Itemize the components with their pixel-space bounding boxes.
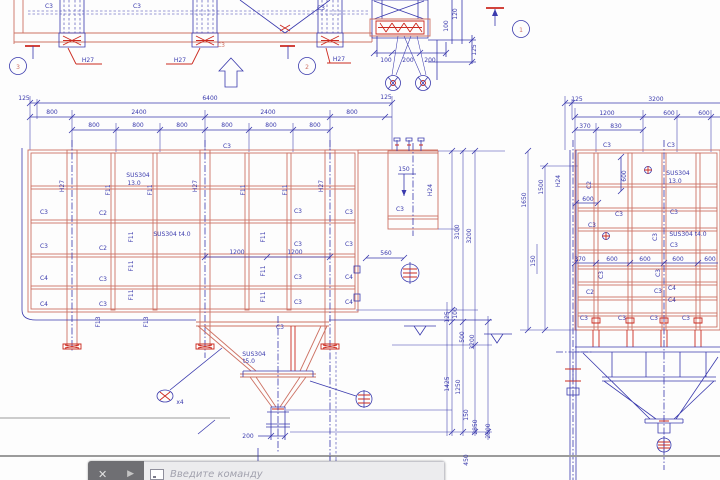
- drawing-label: 150: [463, 409, 470, 421]
- drawing-label: F11: [260, 291, 267, 302]
- drawing-label: 370: [574, 256, 586, 263]
- drawing-label: C3: [670, 242, 678, 249]
- drawing-label: 1200: [229, 249, 244, 256]
- drawing-label: C3: [294, 274, 302, 281]
- close-icon[interactable]: ✕: [98, 469, 107, 480]
- drawing-label: 100: [452, 307, 459, 319]
- drawing-label: C2: [586, 289, 594, 296]
- drawing-label: 500: [459, 331, 466, 343]
- drawing-label: SUS304 t4.0: [153, 231, 190, 238]
- drawing-label: t5.0: [243, 358, 255, 365]
- drawing-label: H24: [555, 175, 562, 187]
- drawing-label: 125: [571, 96, 583, 103]
- drawing-label: C3: [682, 315, 690, 322]
- drawing-label: x4: [176, 399, 184, 406]
- drawing-label: 200: [424, 57, 436, 64]
- drawing-label: 600: [698, 110, 710, 117]
- drawing-label: C3: [45, 3, 53, 10]
- drawing-label: C4: [668, 285, 676, 292]
- drawing-label: SUS304: [126, 172, 150, 179]
- drawing-label: 800: [221, 122, 233, 129]
- drawing-label: C3: [217, 42, 225, 49]
- drawing-label: 800: [46, 109, 58, 116]
- drawing-label: C3: [223, 143, 231, 150]
- drawing-label: 13.0: [127, 180, 141, 187]
- drawing-label: 3200: [466, 228, 473, 243]
- drawing-label: C3: [294, 241, 302, 248]
- cad-app-window: C3C3C3C3H27H27H2732110020020012010012512…: [0, 0, 720, 480]
- drawing-label: C4: [40, 275, 48, 282]
- drawing-label: 3200: [648, 96, 663, 103]
- drawing-label: 200: [402, 57, 414, 64]
- command-prompt-icon: [150, 469, 164, 480]
- drawing-label: C3: [650, 315, 658, 322]
- drawing-label: C4: [40, 301, 48, 308]
- drawing-label: C3: [396, 206, 404, 213]
- drawing-label: C3: [99, 276, 107, 283]
- drawing-label: 1425: [444, 376, 451, 391]
- drawing-label: C3: [99, 301, 107, 308]
- drawing-label: 200: [242, 433, 254, 440]
- drawing-label: 800: [88, 122, 100, 129]
- drawing-label: C2: [99, 210, 107, 217]
- drawing-label: C4: [668, 297, 676, 304]
- drawing-label: 800: [346, 109, 358, 116]
- drawing-label: 120: [452, 8, 459, 20]
- drawing-label: 600: [672, 256, 684, 263]
- drawing-label: 125: [18, 95, 30, 102]
- drawing-label: C3: [294, 299, 302, 306]
- drawing-label: 560: [380, 250, 392, 257]
- drawing-label: 3100: [454, 224, 461, 239]
- drawing-label: 150: [398, 166, 410, 173]
- drawing-label: 1500: [538, 179, 545, 194]
- drawing-label: C3: [615, 211, 623, 218]
- drawing-labels: C3C3C3C3H27H27H2732110020020012010012512…: [16, 3, 716, 466]
- drawing-label: C3: [667, 142, 675, 149]
- run-arrow-icon[interactable]: ▶: [127, 470, 134, 479]
- drawing-label: 830: [610, 123, 622, 130]
- drawing-label: 370: [579, 123, 591, 130]
- drawing-label: F11: [240, 184, 247, 195]
- drawing-label: 100: [443, 20, 450, 32]
- drawing-label: C3: [618, 315, 626, 322]
- drawing-label: H27: [318, 180, 325, 192]
- drawing-label: H27: [333, 56, 345, 63]
- drawing-label: 2400: [131, 109, 146, 116]
- drawing-label: C4: [345, 274, 353, 281]
- drawing-label: 2850: [472, 419, 479, 434]
- drawing-label: C3: [317, 5, 325, 12]
- drawing-label: F11: [282, 184, 289, 195]
- command-bar: ✕ ▶ Введите команду: [88, 461, 445, 480]
- drawing-label: 125: [444, 311, 451, 323]
- drawing-label: 2: [305, 64, 309, 71]
- support-structure: [565, 347, 720, 453]
- drawing-label: C3: [40, 209, 48, 216]
- drawing-label: C2: [99, 245, 107, 252]
- drawing-label: 1200: [599, 110, 614, 117]
- drawing-label: 600: [704, 256, 716, 263]
- drawing-label: 600: [621, 170, 628, 182]
- drawing-label: C3: [133, 3, 141, 10]
- level-mark-icon: [404, 326, 512, 343]
- drawing-viewport[interactable]: C3C3C3C3H27H27H2732110020020012010012512…: [0, 0, 720, 480]
- north-arrow-icon: [219, 58, 243, 87]
- drawing-label: F11: [128, 289, 135, 300]
- drawing-label: F13: [95, 316, 102, 327]
- drawing-label: C3: [654, 288, 662, 295]
- drawing-label: 2800: [485, 423, 492, 438]
- drawing-label: C3: [345, 209, 353, 216]
- drawing-label: C3: [588, 222, 596, 229]
- drawing-label: C2: [586, 181, 593, 189]
- drawing-label: 600: [663, 110, 675, 117]
- drawing-label: C3: [598, 271, 605, 279]
- drawing-label: C3: [603, 142, 611, 149]
- main-elevation-view: [22, 96, 505, 462]
- drawing-label: 3: [16, 64, 20, 71]
- drawing-label: C3: [655, 269, 662, 277]
- drawing-label: SUS304: [666, 170, 690, 177]
- drawing-label: 800: [265, 122, 277, 129]
- drawing-label: F11: [147, 184, 154, 195]
- drawing-label: C3: [652, 233, 659, 241]
- drawing-label: 600: [639, 256, 651, 263]
- drawing-label: C3: [345, 241, 353, 248]
- side-elevation-view: [556, 96, 720, 480]
- drawing-label: F11: [128, 231, 135, 242]
- drawing-label: 1200: [287, 249, 302, 256]
- drawing-label: 1650: [521, 192, 528, 207]
- drawing-label: 100: [380, 57, 392, 64]
- drawing-label: 1: [519, 27, 523, 34]
- base-plates: [63, 344, 339, 349]
- drawing-label: 2400: [260, 109, 275, 116]
- drawing-label: H24: [427, 184, 434, 196]
- drawing-label: 800: [132, 122, 144, 129]
- drawing-label: C3: [580, 315, 588, 322]
- drawing-label: C3: [670, 209, 678, 216]
- drawing-label: 600: [606, 256, 618, 263]
- drawing-label: 3200: [469, 334, 476, 349]
- drawing-label: H27: [174, 57, 186, 64]
- drawing-label: 13.0: [668, 178, 682, 185]
- drawing-label: SUS304 t4.0: [669, 231, 706, 238]
- drawing-label: 600: [582, 196, 594, 203]
- drawing-label: SUS304: [242, 351, 266, 358]
- drawing-label: 1250: [455, 379, 462, 394]
- drawing-label: F11: [260, 231, 267, 242]
- drawing-label: H27: [59, 180, 66, 192]
- drawing-label: H27: [192, 180, 199, 192]
- drawing-label: F13: [143, 316, 150, 327]
- drawing-label: 150: [530, 255, 537, 267]
- anchor-detail-view: [370, 0, 476, 91]
- drawing-label: 6400: [202, 95, 217, 102]
- command-input[interactable]: Введите команду: [144, 461, 445, 480]
- drawing-label: C3: [276, 324, 284, 331]
- drawing-label: F11: [105, 184, 112, 195]
- drawing-label: 450: [463, 454, 470, 466]
- command-bar-controls: ✕ ▶: [88, 461, 144, 480]
- command-placeholder: Введите команду: [170, 469, 263, 480]
- drawing-label: 125: [380, 94, 392, 101]
- drawing-label: C3: [40, 243, 48, 250]
- drawing-label: 800: [176, 122, 188, 129]
- holding-bolts: [394, 138, 424, 151]
- leader-lines: [68, 48, 351, 64]
- drawing-label: H27: [82, 57, 94, 64]
- drawing-label: C3: [294, 208, 302, 215]
- drawing-label: F11: [260, 265, 267, 276]
- drawing-label: 125: [471, 44, 478, 56]
- drawing-label: 800: [309, 122, 321, 129]
- drawing-label: F11: [128, 260, 135, 271]
- drawing-label: C4: [345, 299, 353, 306]
